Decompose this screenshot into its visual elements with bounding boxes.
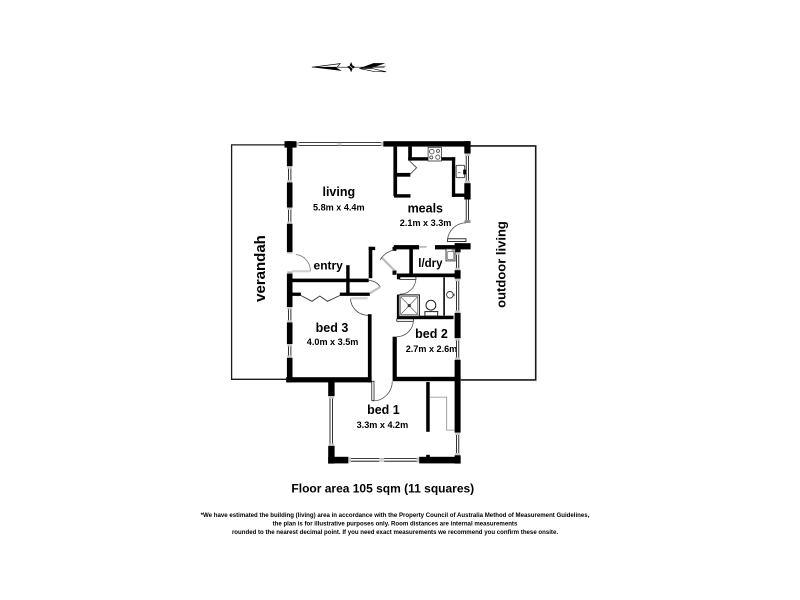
svg-text:2.7m x 2.6m: 2.7m x 2.6m <box>406 344 458 354</box>
svg-text:5.8m x 4.4m: 5.8m x 4.4m <box>313 203 365 213</box>
svg-text:living: living <box>322 185 355 199</box>
svg-text:bed 1: bed 1 <box>367 403 400 417</box>
svg-text:outdoor living: outdoor living <box>493 221 508 308</box>
svg-text:rounded to the nearest decimal: rounded to the nearest decimal point. If… <box>232 529 558 536</box>
svg-text:bed 2: bed 2 <box>415 327 448 341</box>
svg-text:Floor area 105 sqm (11 squares: Floor area 105 sqm (11 squares) <box>291 482 474 496</box>
svg-text:l/dry: l/dry <box>418 258 443 270</box>
svg-text:entry: entry <box>314 259 344 273</box>
svg-text:2.1m x 3.3m: 2.1m x 3.3m <box>400 218 452 228</box>
svg-text:4.0m x 3.5m: 4.0m x 3.5m <box>307 337 359 347</box>
svg-text:verandah: verandah <box>252 235 269 302</box>
svg-text:meals: meals <box>408 202 443 216</box>
svg-text:3.3m x 4.2m: 3.3m x 4.2m <box>357 420 409 430</box>
svg-text:bed 3: bed 3 <box>316 321 349 335</box>
svg-text:the plan is for illustrative p: the plan is for illustrative purposes on… <box>273 521 518 528</box>
svg-text:*We have estimated the buildin: *We have estimated the building (living)… <box>201 512 590 519</box>
